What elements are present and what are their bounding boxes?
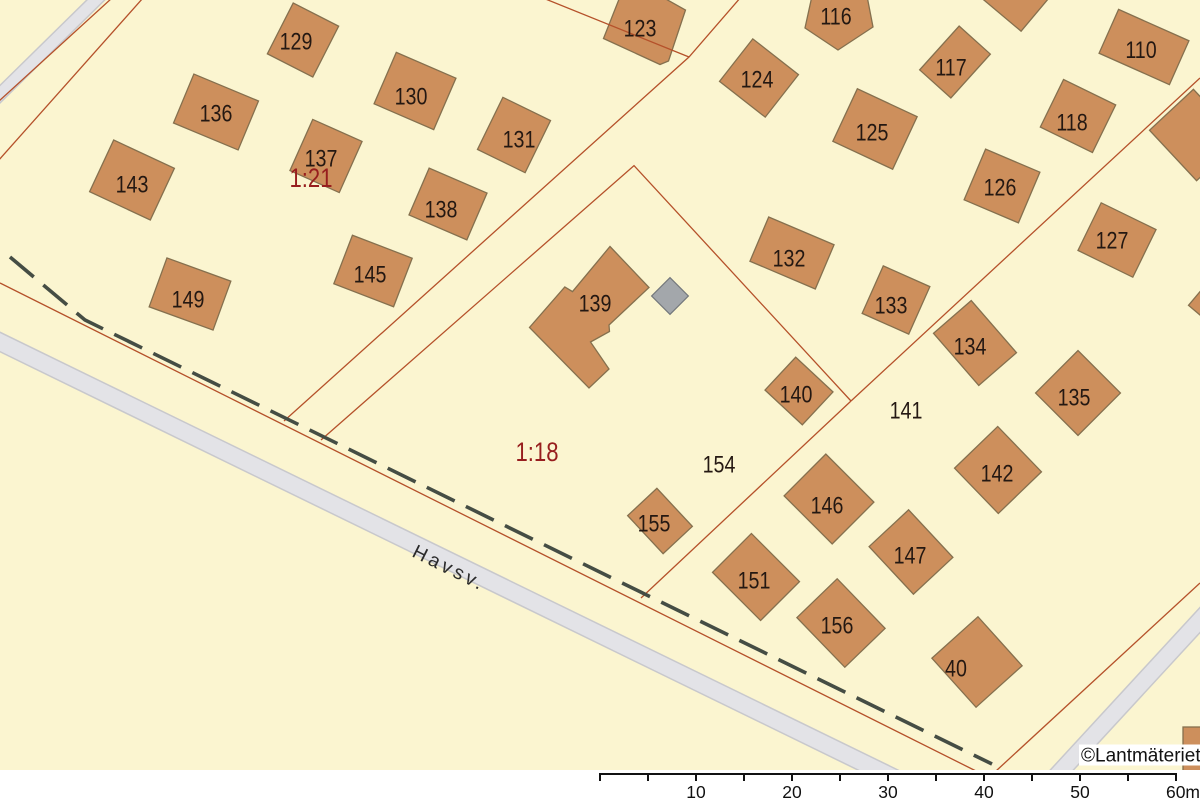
svg-text:131: 131	[503, 126, 536, 153]
svg-text:40: 40	[974, 782, 994, 800]
svg-text:117: 117	[935, 54, 966, 81]
svg-text:127: 127	[1096, 227, 1129, 254]
svg-text:138: 138	[425, 196, 458, 223]
svg-text:142: 142	[981, 460, 1014, 487]
svg-text:145: 145	[354, 261, 387, 288]
svg-text:116: 116	[820, 3, 851, 30]
svg-text:151: 151	[738, 567, 771, 594]
svg-text:118: 118	[1056, 109, 1087, 136]
svg-text:124: 124	[741, 66, 774, 93]
svg-text:1:21: 1:21	[289, 164, 332, 194]
svg-text:110: 110	[1125, 36, 1156, 63]
svg-text:125: 125	[856, 119, 889, 146]
svg-text:129: 129	[280, 28, 313, 55]
svg-text:155: 155	[638, 510, 671, 537]
svg-text:143: 143	[116, 171, 149, 198]
svg-text:146: 146	[811, 492, 844, 519]
svg-text:133: 133	[875, 292, 908, 319]
svg-text:136: 136	[200, 100, 233, 127]
svg-text:139: 139	[579, 290, 612, 317]
svg-text:141: 141	[890, 397, 923, 424]
svg-text:147: 147	[894, 542, 927, 569]
svg-text:135: 135	[1058, 384, 1091, 411]
svg-text:30: 30	[878, 782, 898, 800]
svg-text:60m: 60m	[1166, 782, 1200, 800]
svg-text:126: 126	[984, 174, 1017, 201]
svg-text:1:18: 1:18	[515, 438, 558, 468]
svg-text:©Lantmäteriet: ©Lantmäteriet	[1081, 746, 1200, 767]
svg-text:40: 40	[945, 655, 967, 682]
svg-text:149: 149	[172, 286, 205, 313]
svg-text:154: 154	[703, 451, 736, 478]
svg-text:20: 20	[782, 782, 802, 800]
svg-text:130: 130	[395, 83, 428, 110]
svg-text:10: 10	[686, 782, 706, 800]
svg-text:123: 123	[624, 15, 657, 42]
svg-text:134: 134	[954, 333, 987, 360]
svg-text:132: 132	[773, 245, 806, 272]
svg-text:140: 140	[780, 381, 813, 408]
svg-text:156: 156	[821, 612, 854, 639]
svg-text:50: 50	[1070, 782, 1090, 800]
